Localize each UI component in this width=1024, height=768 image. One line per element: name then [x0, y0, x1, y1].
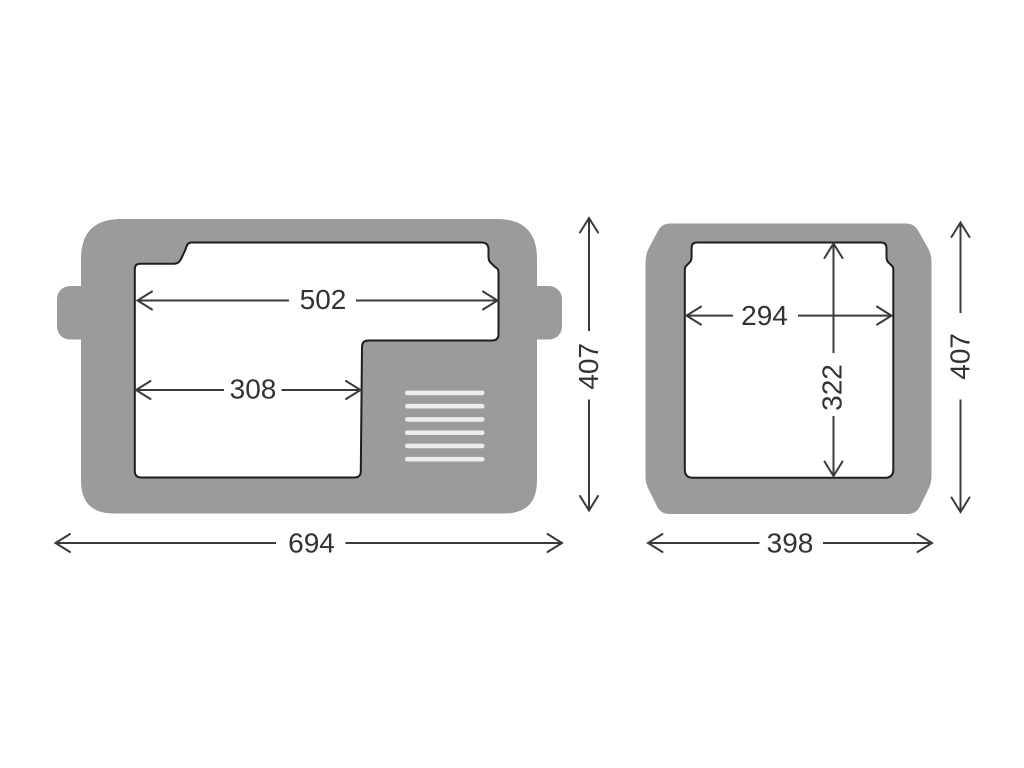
- svg-text:694: 694: [288, 528, 335, 559]
- svg-text:502: 502: [300, 284, 347, 315]
- svg-text:407: 407: [945, 333, 976, 380]
- svg-text:308: 308: [230, 374, 277, 405]
- svg-text:398: 398: [767, 528, 814, 559]
- svg-text:294: 294: [741, 300, 788, 331]
- svg-text:407: 407: [573, 343, 604, 390]
- svg-text:322: 322: [817, 364, 848, 411]
